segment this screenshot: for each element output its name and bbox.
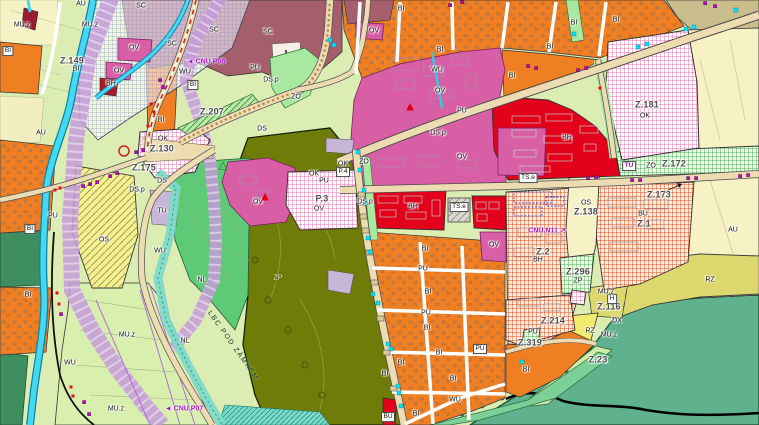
zone-code-label: RZ — [585, 328, 594, 335]
zone-code-label: BI — [25, 292, 32, 299]
plan-area-label: Z.173 — [647, 191, 671, 200]
zone-code-label: BI — [158, 117, 165, 124]
zone-code-label: BI — [424, 325, 431, 332]
zone-code-label: OV — [129, 45, 139, 52]
zone-code-label: PU — [418, 266, 428, 273]
zone-code-label: OK — [338, 161, 348, 168]
zone-code-label: WU — [179, 69, 191, 76]
zone-code-label: ZO — [646, 163, 656, 170]
plan-area-label: Z.2 — [536, 248, 550, 257]
boxed-code-label: BU — [381, 412, 395, 422]
zone-code-label: PU — [319, 178, 329, 185]
zone-code-label: OV — [114, 68, 124, 75]
zone-code-label: NL — [198, 277, 207, 284]
zone-code-label: BI — [547, 44, 554, 51]
map-labels-layer: Z.149Z.207Z.130Z.175Z.181Z.172Z.173Z.1Z.… — [0, 0, 759, 425]
zone-code-label: MU.z — [598, 289, 614, 296]
zone-code-label: DS.p — [263, 77, 279, 84]
zone-code-label: BI — [382, 371, 389, 378]
plan-area-label: Z.116 — [597, 303, 621, 312]
zone-code-label: DX — [612, 318, 622, 325]
zone-code-label: OV — [253, 199, 263, 206]
zone-code-label: BH — [533, 257, 543, 264]
zone-code-label: OK — [309, 171, 319, 178]
plan-area-label: Z.319 — [518, 339, 542, 348]
zone-code-label: OV — [457, 154, 467, 161]
zone-code-label: OV — [435, 88, 445, 95]
zone-code-label: DS.p — [129, 187, 145, 194]
zone-code-label: RZ — [705, 277, 714, 284]
zone-code-label: BU — [638, 211, 648, 218]
zone-code-label: DS.p — [430, 130, 446, 137]
zone-code-label: OV — [489, 242, 499, 249]
zone-code-label: DS.p — [357, 199, 373, 206]
zone-code-label: WU — [154, 248, 166, 255]
zone-code-label: PU — [528, 329, 538, 336]
boxed-code-label: TS.e — [450, 202, 469, 212]
zone-code-label: ZP — [273, 273, 283, 281]
zone-code-label: OK — [640, 113, 650, 120]
plan-area-label: Z.138 — [574, 208, 598, 217]
zone-code-label: OS — [581, 200, 591, 207]
plan-area-label: P.3 — [316, 195, 329, 204]
zone-code-label: OV — [369, 28, 379, 35]
plan-area-label: Z.207 — [200, 108, 224, 117]
zone-code-label: BH — [408, 204, 418, 211]
change-ref-label: ◄ CNU.P08 — [187, 59, 225, 66]
boxed-code-label: PU — [473, 344, 487, 354]
plan-area-label: Z.23 — [589, 356, 608, 365]
zone-code-label: ZO — [291, 94, 301, 101]
change-ref-label: ◄ CNU.P07 — [165, 406, 203, 413]
zone-code-label: MU.z — [14, 22, 30, 29]
landmark-triangle-icon: ▲ — [404, 100, 417, 113]
zone-code-label: BI — [450, 376, 457, 383]
zone-code-label: PU — [250, 65, 260, 72]
biocorridor-label: LBC POD ZÁMKEM — [206, 310, 260, 383]
zone-code-label: PU — [48, 213, 58, 220]
zone-code-label: MU.z — [119, 332, 135, 339]
boxed-code-label: H — [607, 294, 617, 304]
plan-area-label: Z.130 — [150, 145, 174, 154]
zone-code-label: AU — [36, 130, 46, 137]
plan-area-label: Z.181 — [635, 101, 659, 110]
boxed-code-label: TU — [622, 161, 636, 171]
boxed-code-label: TS.e — [519, 173, 538, 183]
zone-code-label: BI — [509, 73, 516, 80]
zone-code-label: BI — [73, 66, 80, 73]
zone-code-label: SC — [263, 29, 273, 36]
zone-code-label: BI — [571, 20, 578, 27]
plan-area-label: Z.149 — [60, 57, 84, 66]
zone-code-label: BI — [398, 360, 405, 367]
zone-code-label: BI — [422, 246, 429, 253]
zone-code-label: TU — [157, 208, 166, 215]
zone-code-label: BH — [562, 135, 572, 142]
zone-code-label: OS — [99, 237, 109, 244]
zone-code-label: AU — [728, 227, 738, 234]
zone-code-label: WU — [431, 67, 443, 74]
zone-code-label: PU — [457, 108, 467, 115]
landmark-triangle-icon: ▲ — [259, 190, 272, 203]
boxed-code-label: BI — [24, 224, 35, 234]
boxed-code-label: P.4 — [336, 167, 350, 177]
change-ref-label: CNU.N11 ↗ — [528, 228, 565, 235]
zone-code-label: BI — [425, 289, 432, 296]
zone-code-label: BI — [613, 17, 620, 24]
landmark-triangle-icon: △ — [219, 161, 227, 172]
plan-area-label: Z.175 — [132, 164, 156, 173]
boxed-code-label: BI — [2, 46, 13, 56]
zone-code-label: DS — [257, 126, 267, 133]
zone-code-label: MU.z — [82, 22, 98, 29]
boxed-code-label: BI — [187, 80, 198, 90]
zone-code-label: AU — [76, 1, 86, 8]
zone-code-label: OK — [158, 136, 168, 143]
zone-code-label: WU — [64, 360, 76, 367]
zone-code-label: DS — [157, 178, 167, 185]
zone-code-label: BI — [437, 47, 444, 54]
zone-code-label: NL — [181, 338, 190, 345]
zone-code-label: BI — [436, 350, 443, 357]
zone-code-label: PU — [421, 310, 431, 317]
zone-code-label: ZP — [574, 278, 583, 285]
zone-code-label: WU — [449, 397, 461, 404]
plan-area-label: Z.214 — [541, 317, 565, 326]
zone-code-label: BI — [398, 6, 405, 13]
plan-area-label: Z.1 — [637, 220, 651, 229]
zone-code-label: OV — [314, 206, 324, 213]
plan-area-label: Z.296 — [566, 268, 590, 277]
zone-code-label: BH — [106, 81, 116, 88]
zone-code-label: SC — [209, 27, 219, 34]
zone-code-label: BI — [413, 411, 420, 418]
zone-code-label: ZO — [359, 159, 369, 166]
zone-code-label: SC — [167, 41, 177, 48]
zone-code-label: BI — [523, 367, 530, 374]
zone-code-label: MU.z — [601, 332, 617, 339]
plan-area-label: Z.172 — [662, 160, 686, 169]
zone-code-label: SC — [136, 3, 146, 10]
zone-code-label: MU.z — [108, 406, 124, 413]
zoning-map-viewport[interactable]: Z.149Z.207Z.130Z.175Z.181Z.172Z.173Z.1Z.… — [0, 0, 759, 425]
